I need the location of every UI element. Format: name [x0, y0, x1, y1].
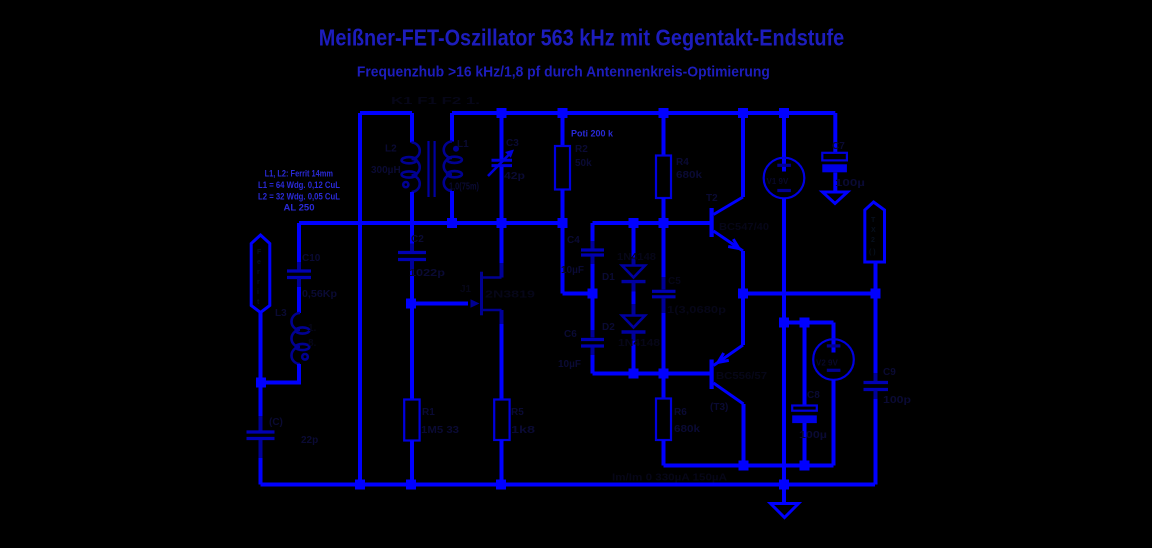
svg-text:L1: L1: [457, 139, 469, 150]
svg-text:10µF: 10µF: [558, 359, 581, 370]
svg-text:2: 2: [871, 237, 875, 244]
svg-text:1N4148: 1N4148: [618, 338, 661, 349]
svg-text:V1 9V: V1 9V: [767, 177, 789, 186]
svg-text:r: r: [257, 279, 260, 286]
svg-text:R6: R6: [674, 407, 687, 418]
svg-text:1M5 33: 1M5 33: [421, 425, 459, 436]
svg-text:680k: 680k: [676, 170, 703, 181]
svg-text:1,0(75m): 1,0(75m): [449, 182, 479, 193]
svg-text:R1: R1: [422, 407, 435, 418]
svg-text:1022p: 1022p: [409, 268, 445, 279]
svg-text:i: i: [257, 289, 259, 296]
svg-text:Frequenzhub >16 kHz/1,8 pf dur: Frequenzhub >16 kHz/1,8 pf durch Antenne…: [357, 64, 770, 81]
svg-text:1.: 1.: [308, 323, 317, 334]
svg-text:C7: C7: [832, 141, 845, 152]
svg-text:(T3): (T3): [710, 402, 728, 413]
svg-text:8.: 8.: [308, 338, 317, 349]
svg-text:r: r: [257, 269, 260, 276]
svg-text:L1, L2: Ferrit 14mm: L1, L2: Ferrit 14mm: [265, 169, 333, 180]
svg-text:L2: L2: [385, 144, 397, 155]
svg-text:K1 F1 F2 1.: K1 F1 F2 1.: [391, 96, 480, 107]
svg-text:(C): (C): [269, 417, 283, 428]
svg-text:T: T: [871, 217, 876, 224]
svg-text:100µ: 100µ: [799, 430, 827, 441]
svg-text:R2: R2: [575, 144, 588, 155]
svg-text:10µF: 10µF: [561, 265, 584, 276]
svg-text:L1 = 64 Wdg. 0,12 CuL: L1 = 64 Wdg. 0,12 CuL: [258, 180, 340, 191]
svg-text:Im/Im 0 330µA 150µA: Im/Im 0 330µA 150µA: [612, 473, 727, 484]
svg-text:C8: C8: [807, 390, 820, 401]
svg-text:J1: J1: [460, 284, 472, 295]
svg-text:C6: C6: [564, 329, 577, 340]
svg-text:2N3819: 2N3819: [485, 290, 536, 301]
svg-text:680k: 680k: [674, 424, 701, 435]
svg-text:R5: R5: [511, 407, 524, 418]
svg-text:100µ: 100µ: [835, 178, 865, 189]
svg-text:C4: C4: [567, 235, 580, 246]
svg-text:R4: R4: [676, 157, 689, 168]
svg-text:L2 = 32 Wdg. 0,05 CuL: L2 = 32 Wdg. 0,05 CuL: [258, 191, 340, 202]
svg-text:0,56Kp: 0,56Kp: [302, 289, 337, 300]
svg-text:F: F: [257, 249, 262, 256]
svg-text:Poti 200 k: Poti 200 k: [571, 129, 614, 140]
svg-text:C2: C2: [411, 234, 424, 245]
svg-text:BC547/40: BC547/40: [719, 222, 769, 233]
svg-text:42p: 42p: [504, 171, 525, 182]
svg-text:1k8: 1k8: [511, 425, 536, 436]
svg-text:BC556/57: BC556/57: [716, 371, 767, 382]
svg-text:V2 9V: V2 9V: [816, 359, 838, 368]
svg-text:1(3,0680p: 1(3,0680p: [667, 305, 726, 316]
svg-text:( ): ( ): [869, 249, 876, 256]
svg-text:C9: C9: [883, 367, 896, 378]
svg-text:1N4148: 1N4148: [617, 252, 656, 263]
svg-text:300µH: 300µH: [371, 165, 401, 176]
svg-text:Meißner-FET-Oszillator 563 kHz: Meißner-FET-Oszillator 563 kHz mit Gegen…: [319, 25, 844, 51]
svg-text:100p: 100p: [883, 395, 911, 406]
svg-text:X: X: [871, 227, 876, 234]
svg-text:T2: T2: [706, 193, 718, 204]
svg-text:22p: 22p: [301, 435, 318, 446]
svg-text:50k: 50k: [575, 158, 592, 169]
svg-text:L3: L3: [275, 308, 287, 319]
svg-text:C10: C10: [302, 253, 321, 264]
svg-text:D1: D1: [602, 272, 615, 283]
svg-text:C3: C3: [506, 138, 519, 149]
svg-text:AL 250: AL 250: [284, 203, 315, 214]
svg-text:D2: D2: [602, 322, 615, 333]
svg-text:C5: C5: [668, 276, 681, 287]
svg-text:e: e: [257, 259, 261, 266]
